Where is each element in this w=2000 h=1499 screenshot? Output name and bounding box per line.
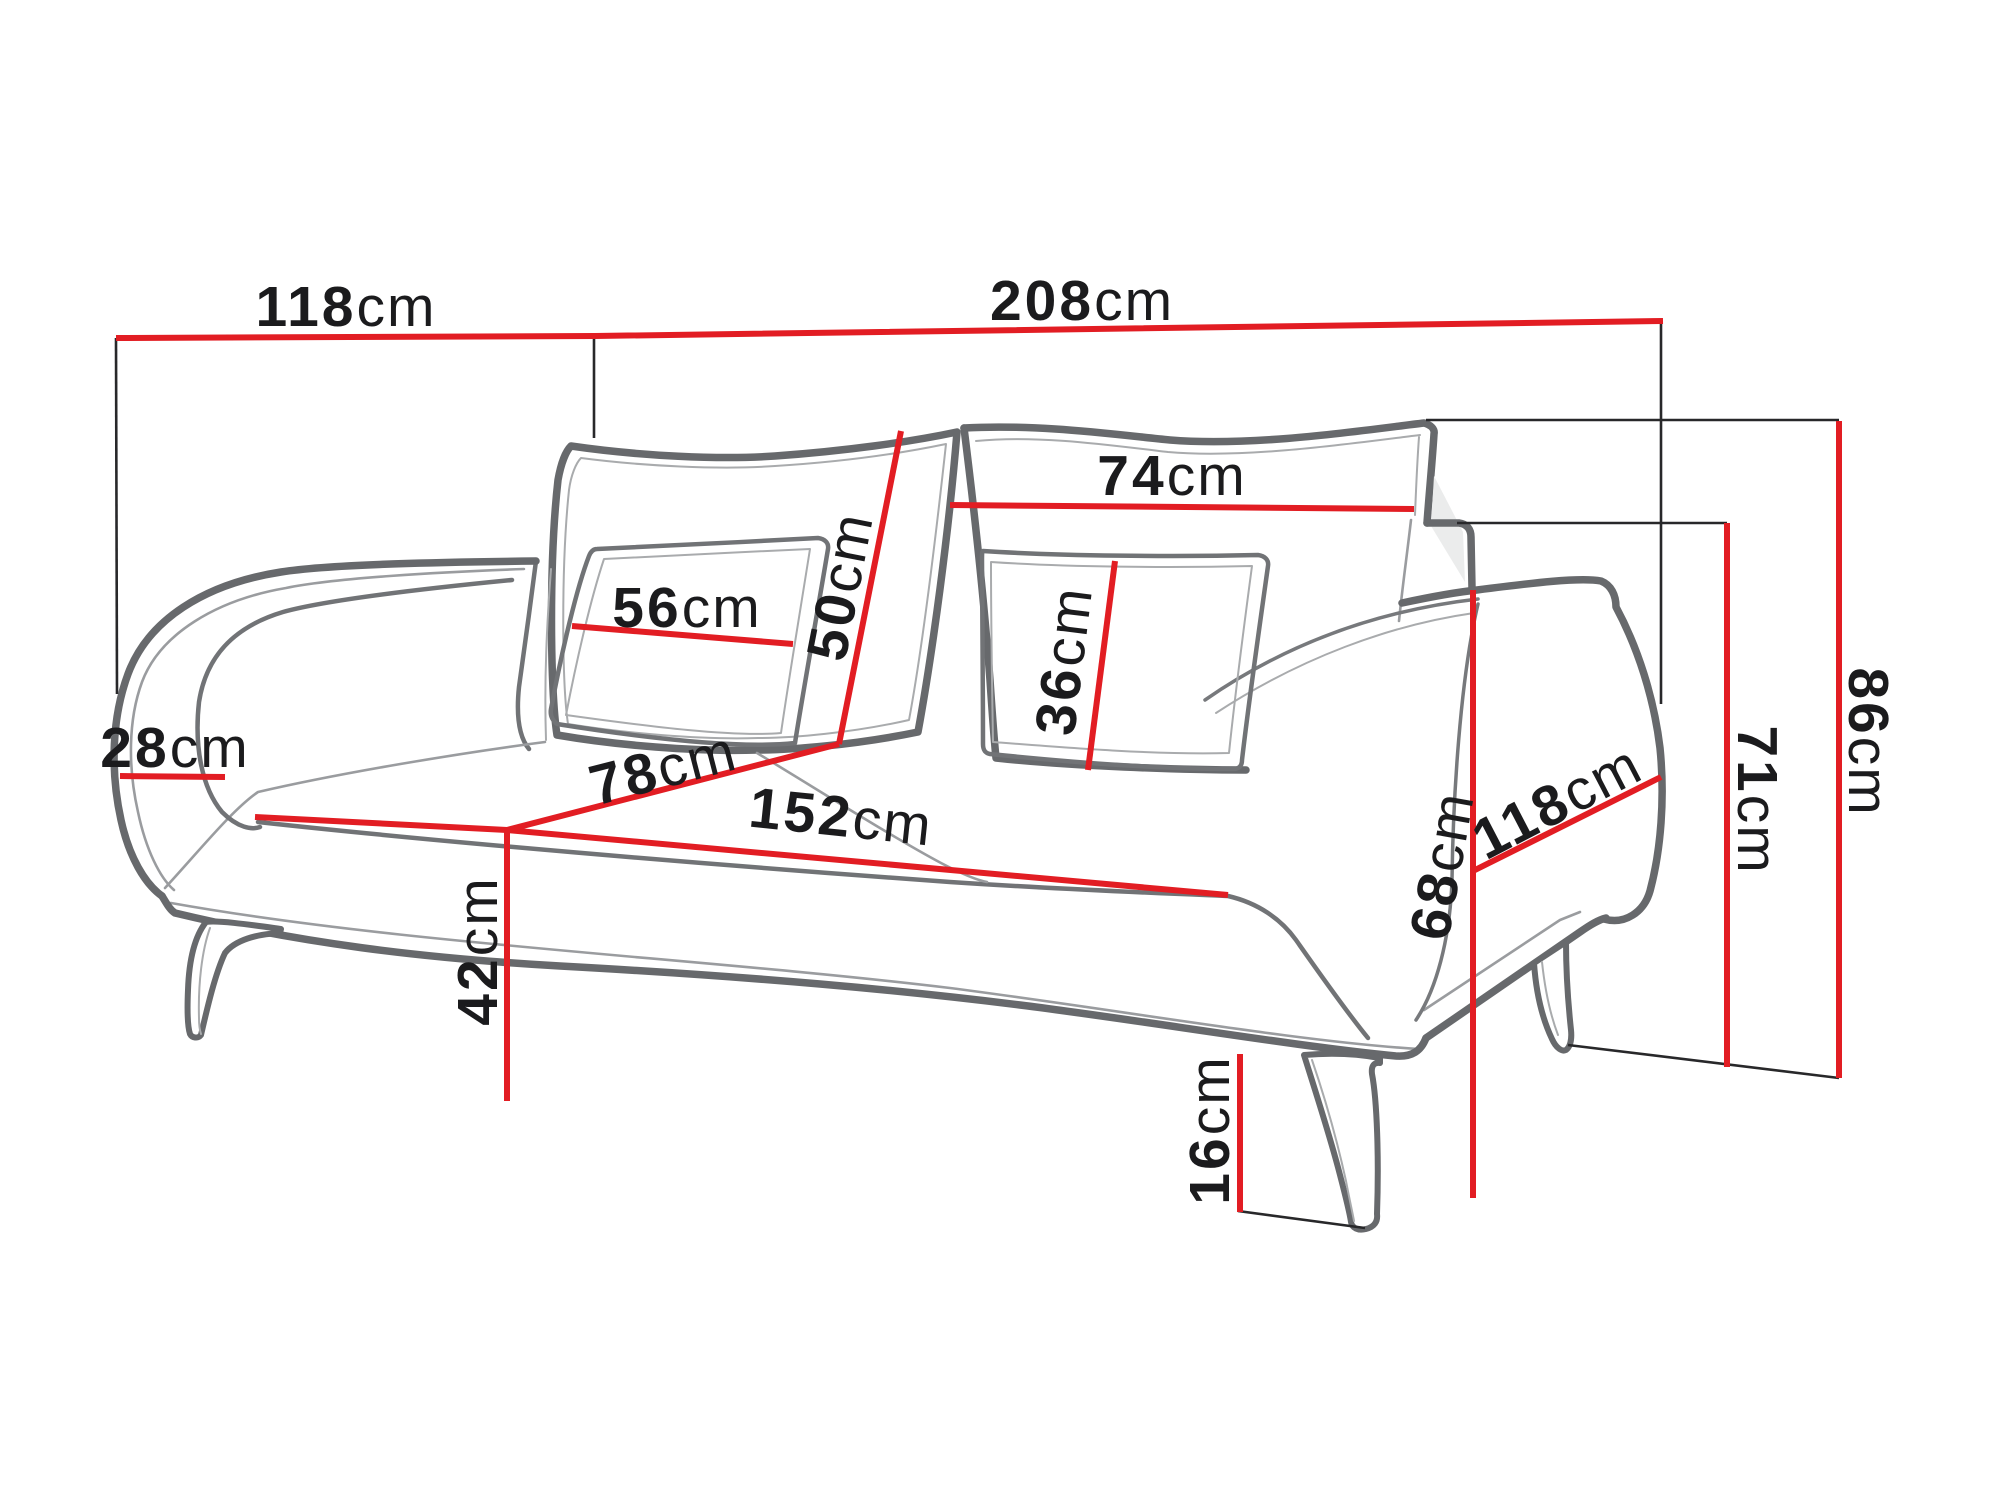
svg-text:28cm: 28cm bbox=[100, 716, 249, 780]
svg-text:208cm: 208cm bbox=[990, 269, 1174, 333]
svg-text:16cm: 16cm bbox=[1178, 1055, 1242, 1204]
svg-text:86cm: 86cm bbox=[1836, 667, 1900, 816]
svg-text:71cm: 71cm bbox=[1725, 725, 1789, 874]
svg-text:118cm: 118cm bbox=[256, 275, 437, 339]
svg-text:56cm: 56cm bbox=[612, 576, 761, 640]
svg-text:42cm: 42cm bbox=[446, 876, 510, 1025]
svg-text:74cm: 74cm bbox=[1097, 444, 1246, 508]
